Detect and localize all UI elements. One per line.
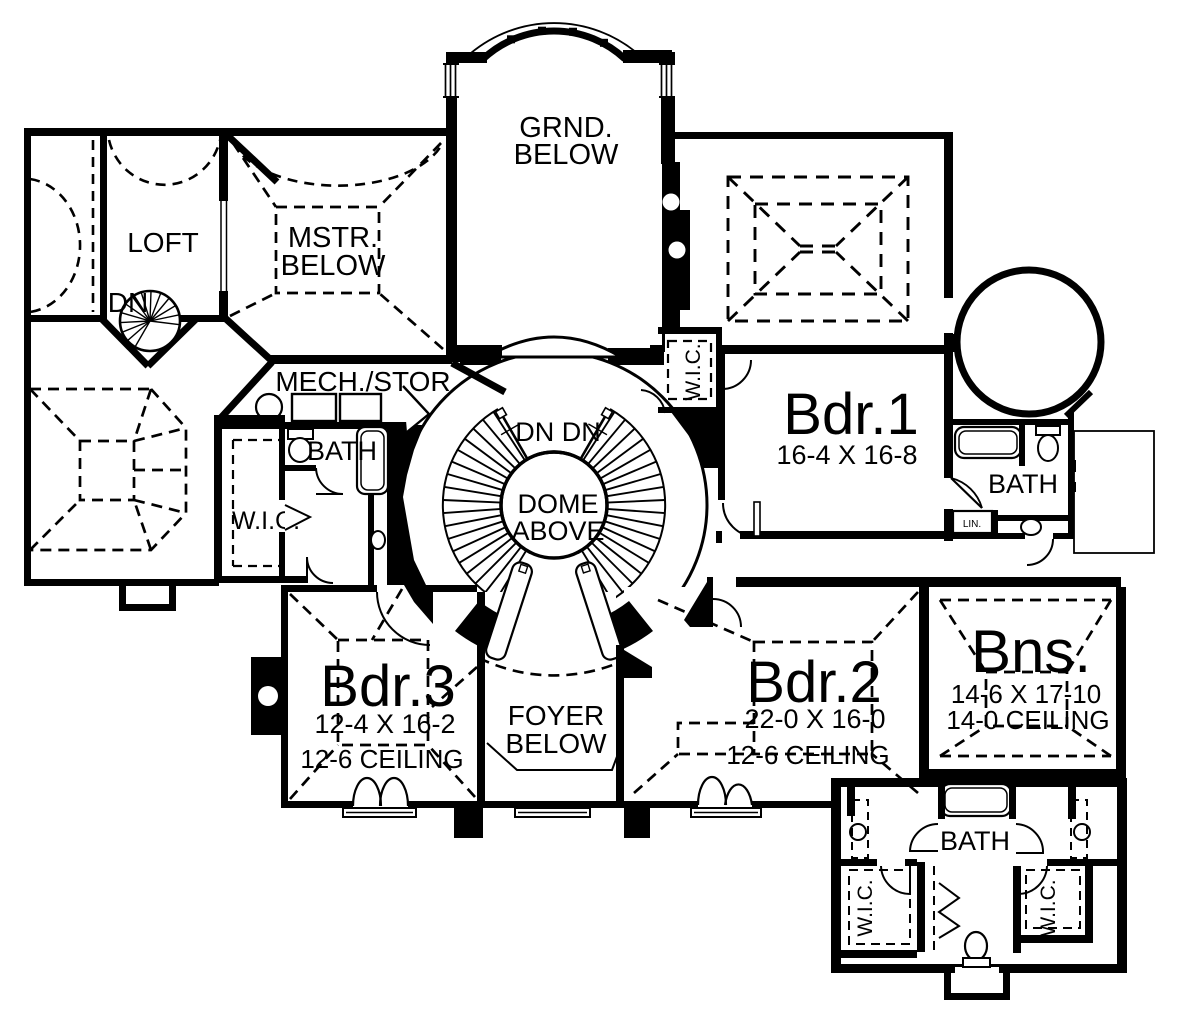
svg-text:22-0 X 16-0: 22-0 X 16-0 (744, 704, 885, 734)
svg-text:Bns.: Bns. (971, 618, 1091, 685)
svg-text:16-4 X 16-8: 16-4 X 16-8 (776, 440, 917, 470)
svg-text:W.I.C.: W.I.C. (854, 879, 877, 936)
svg-text:BELOW: BELOW (281, 250, 386, 282)
svg-text:BATH: BATH (988, 469, 1058, 499)
svg-text:LIN.: LIN. (963, 519, 981, 530)
svg-text:BELOW: BELOW (514, 139, 619, 171)
svg-text:FOYER: FOYER (508, 700, 604, 731)
svg-text:12-4 X 16-2: 12-4 X 16-2 (314, 709, 455, 739)
svg-text:Bdr.1: Bdr.1 (783, 382, 918, 447)
svg-text:BELOW: BELOW (505, 728, 607, 759)
svg-text:DN: DN (108, 287, 148, 318)
svg-text:BATH: BATH (940, 826, 1010, 856)
svg-text:DOME: DOME (518, 489, 599, 519)
svg-text:ABOVE: ABOVE (511, 516, 604, 546)
svg-text:W.I.C.: W.I.C. (682, 343, 705, 400)
svg-text:14-0 CEILING: 14-0 CEILING (946, 705, 1109, 735)
svg-text:BATH: BATH (307, 436, 377, 466)
svg-text:MECH./STOR: MECH./STOR (275, 366, 450, 397)
svg-text:LOFT: LOFT (127, 227, 199, 258)
svg-text:W.I.C.: W.I.C. (1037, 879, 1060, 936)
svg-text:DN DN: DN DN (515, 417, 601, 447)
svg-text:12-6 CEILING: 12-6 CEILING (300, 744, 463, 774)
